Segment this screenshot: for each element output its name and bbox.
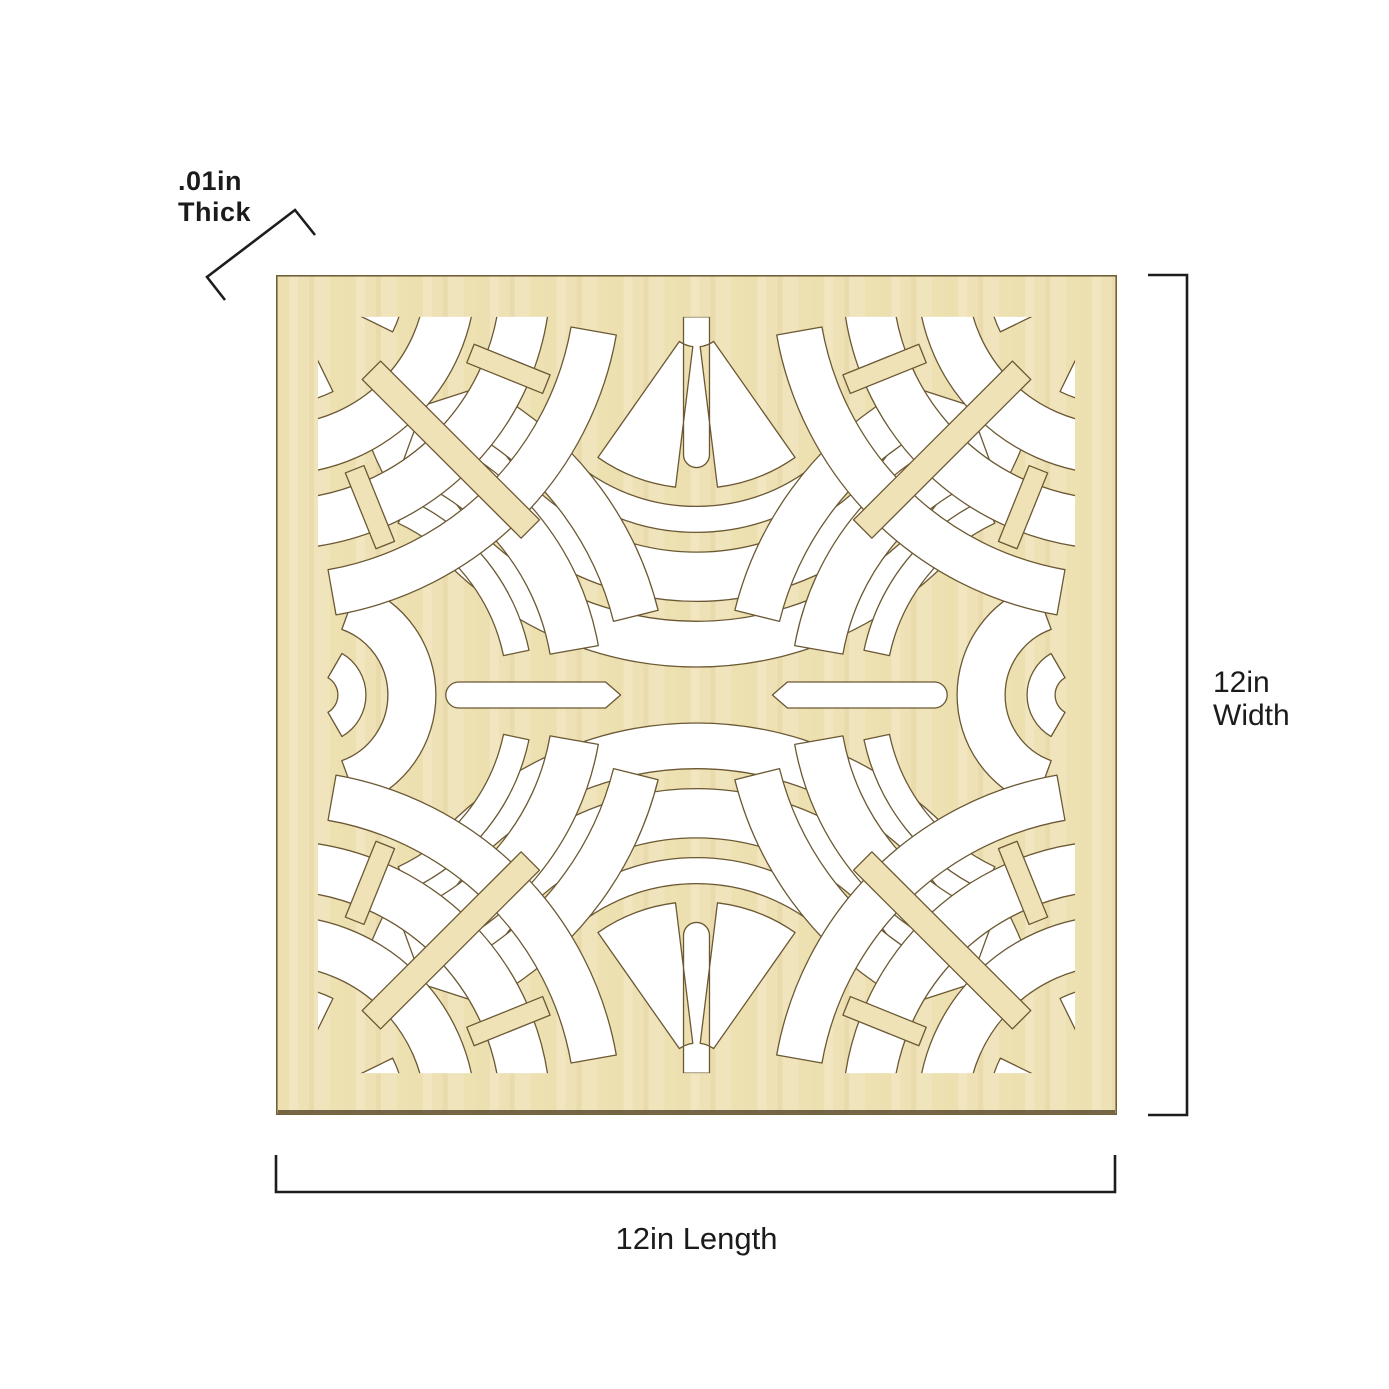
- width-dimension-line: [1148, 275, 1187, 1115]
- width-value: 12in: [1213, 666, 1290, 699]
- product-dimension-diagram: .01in Thick 12in Width 12in Length: [0, 0, 1389, 1389]
- thickness-text: Thick: [178, 197, 251, 228]
- width-label: 12in Width: [1213, 666, 1290, 732]
- width-text: Width: [1213, 699, 1290, 732]
- panel-bottom-edge-shadow: [278, 1110, 1115, 1113]
- length-text: 12in Length: [615, 1221, 777, 1256]
- length-dimension-line: [276, 1155, 1115, 1192]
- length-label: 12in Length: [276, 1221, 1117, 1257]
- thickness-value: .01in: [178, 166, 251, 197]
- thickness-label: .01in Thick: [178, 166, 251, 228]
- wood-panel: [276, 275, 1117, 1115]
